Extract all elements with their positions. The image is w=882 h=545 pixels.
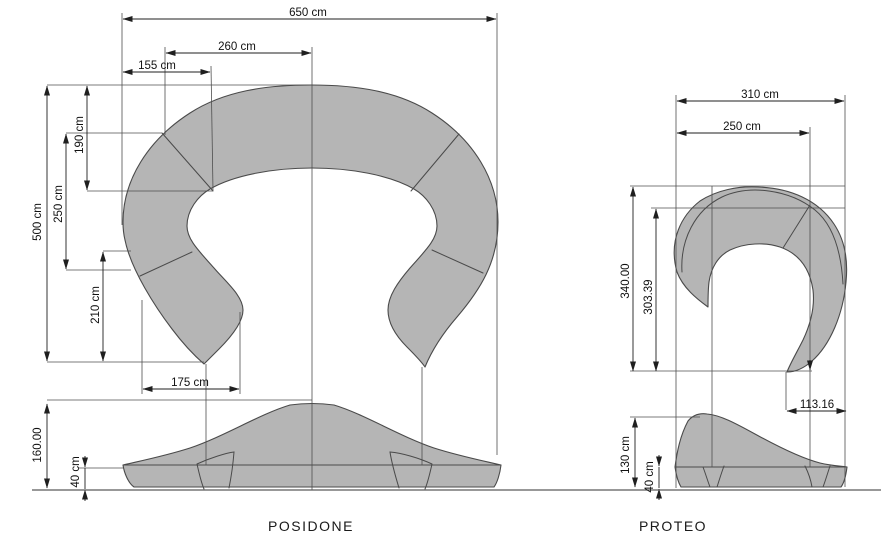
dim-label-155: 155 cm xyxy=(138,60,176,72)
dim-label-190: 190 cm xyxy=(74,116,86,154)
technical-drawing-canvas: 650 cm 260 cm 155 cm 500 cm 190 cm 250 c… xyxy=(0,0,882,545)
dim-label-175: 175 cm xyxy=(171,377,209,389)
proteo-profile-outline xyxy=(675,414,847,487)
dim-label-160: 160.00 xyxy=(32,427,44,462)
dim-label-250: 250 cm xyxy=(53,185,65,223)
drawing-svg: 650 cm 260 cm 155 cm 500 cm 190 cm 250 c… xyxy=(0,0,882,545)
dim-label-500: 500 cm xyxy=(32,203,44,241)
posidone-plan-outline xyxy=(123,85,498,367)
dim-label-113: 113.16 xyxy=(800,399,834,411)
dim-label-340: 340.00 xyxy=(620,263,632,298)
dim-label-130: 130 cm xyxy=(620,436,632,474)
dim-label-40-posidone: 40 cm xyxy=(70,456,82,487)
dim-label-303: 303.39 xyxy=(643,279,655,314)
dim-label-250-proteo: 250 cm xyxy=(723,121,761,133)
posidone-title: POSIDONE xyxy=(268,518,354,534)
proteo-title: PROTEO xyxy=(639,518,707,534)
dim-label-310: 310 cm xyxy=(741,89,779,101)
dim-label-210: 210 cm xyxy=(90,286,102,324)
dim-label-40-proteo: 40 cm xyxy=(644,461,656,492)
dim-label-650: 650 cm xyxy=(289,7,327,19)
dim-label-260: 260 cm xyxy=(218,41,256,53)
